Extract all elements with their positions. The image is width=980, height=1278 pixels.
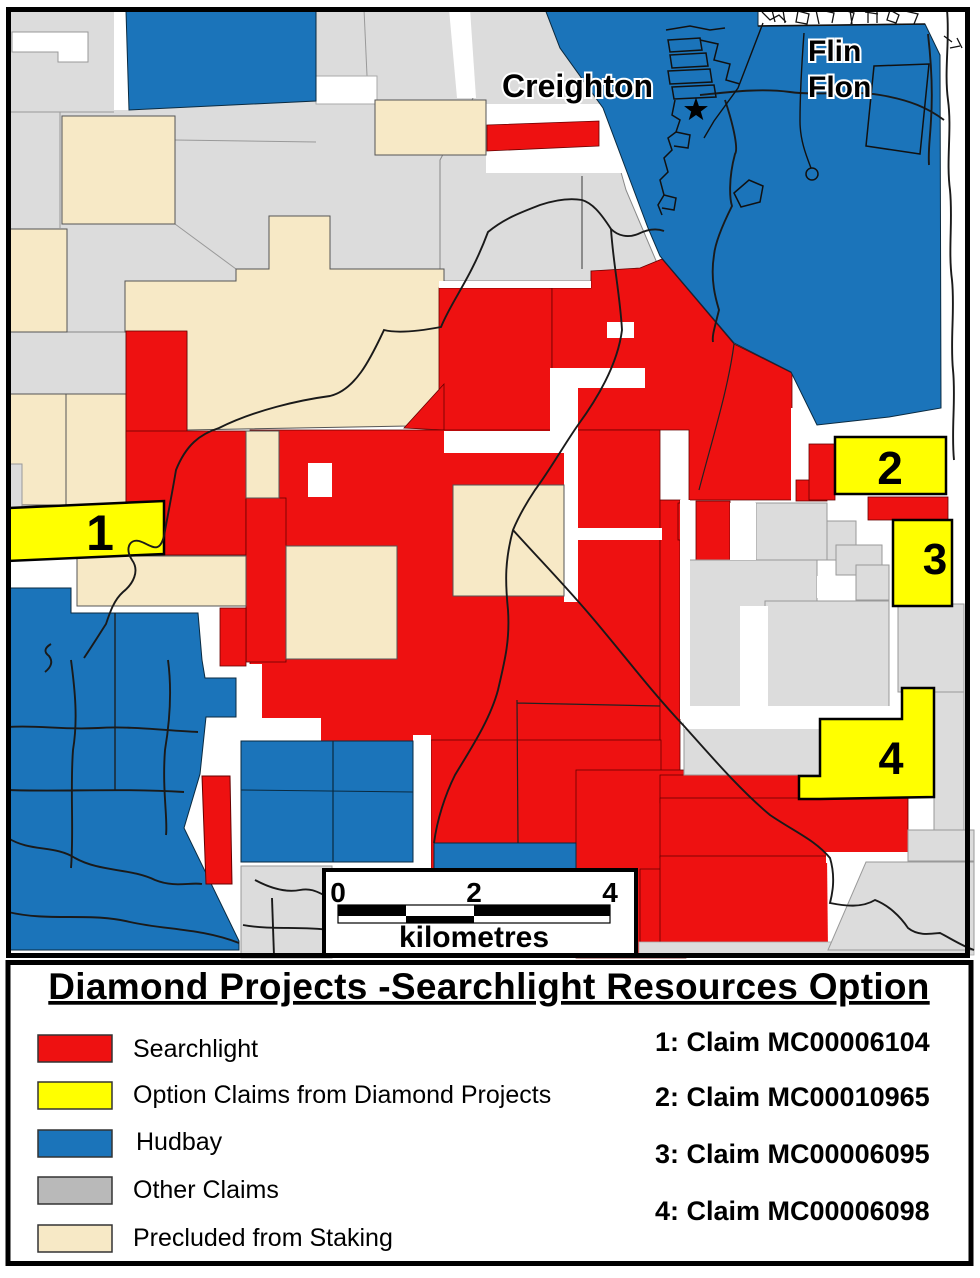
svg-text:4: Claim MC00006098: 4: Claim MC00006098: [655, 1196, 930, 1226]
svg-text:Flin: Flin: [808, 35, 861, 68]
svg-text:0: 0: [330, 877, 346, 908]
svg-text:3: 3: [923, 535, 947, 584]
svg-text:Option Claims from Diamond Pro: Option Claims from Diamond Projects: [133, 1081, 551, 1109]
svg-text:Flon: Flon: [808, 71, 871, 104]
svg-text:1: Claim MC00006104: 1: Claim MC00006104: [655, 1027, 930, 1057]
svg-text:3: Claim MC00006095: 3: Claim MC00006095: [655, 1139, 930, 1169]
svg-text:2: 2: [877, 442, 903, 494]
svg-text:4: 4: [602, 877, 618, 908]
svg-text:1: 1: [86, 505, 114, 561]
svg-text:Creighton: Creighton: [502, 68, 653, 104]
svg-text:Precluded from Staking: Precluded from Staking: [133, 1224, 393, 1252]
svg-text:Searchlight: Searchlight: [133, 1035, 258, 1063]
svg-text:Other Claims: Other Claims: [133, 1176, 279, 1204]
svg-text:4: 4: [878, 733, 903, 784]
svg-text:Diamond Projects -Searchlight: Diamond Projects -Searchlight Resources …: [48, 966, 929, 1007]
svg-text:2: 2: [466, 877, 482, 908]
svg-text:2: Claim MC00010965: 2: Claim MC00010965: [655, 1082, 930, 1112]
svg-text:kilometres: kilometres: [399, 921, 549, 954]
svg-text:Hudbay: Hudbay: [136, 1128, 223, 1156]
